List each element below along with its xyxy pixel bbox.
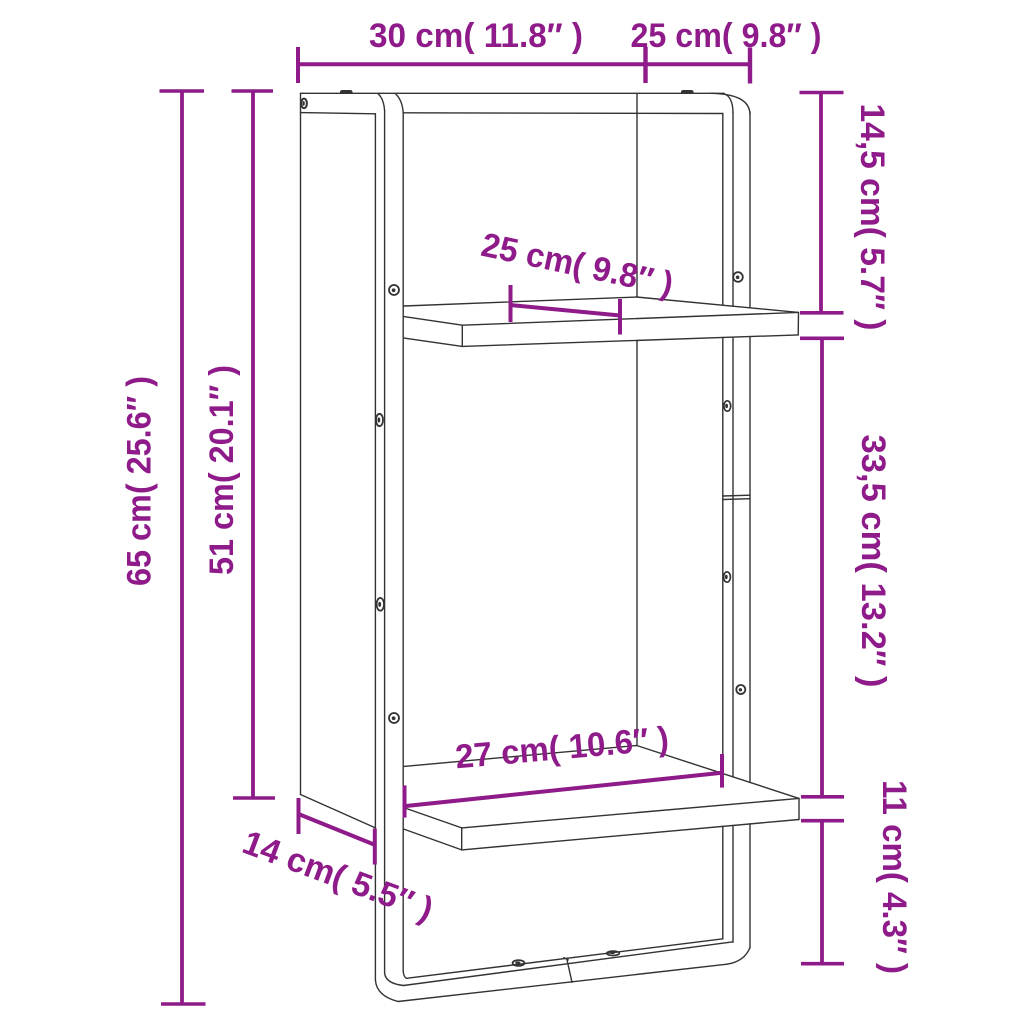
svg-text:33,5 cm( 13.2″ ): 33,5 cm( 13.2″ ) <box>854 435 892 688</box>
svg-text:65 cm( 25.6″ ): 65 cm( 25.6″ ) <box>121 376 159 586</box>
svg-text:25 cm( 9.8″ ): 25 cm( 9.8″ ) <box>631 17 822 55</box>
svg-text:30 cm( 11.8″ ): 30 cm( 11.8″ ) <box>369 17 583 55</box>
svg-text:11 cm( 4.3″ ): 11 cm( 4.3″ ) <box>875 780 913 974</box>
svg-text:14,5 cm( 5.7″ ): 14,5 cm( 5.7″ ) <box>853 104 891 331</box>
svg-text:51 cm( 20.1″ ): 51 cm( 20.1″ ) <box>203 365 241 575</box>
